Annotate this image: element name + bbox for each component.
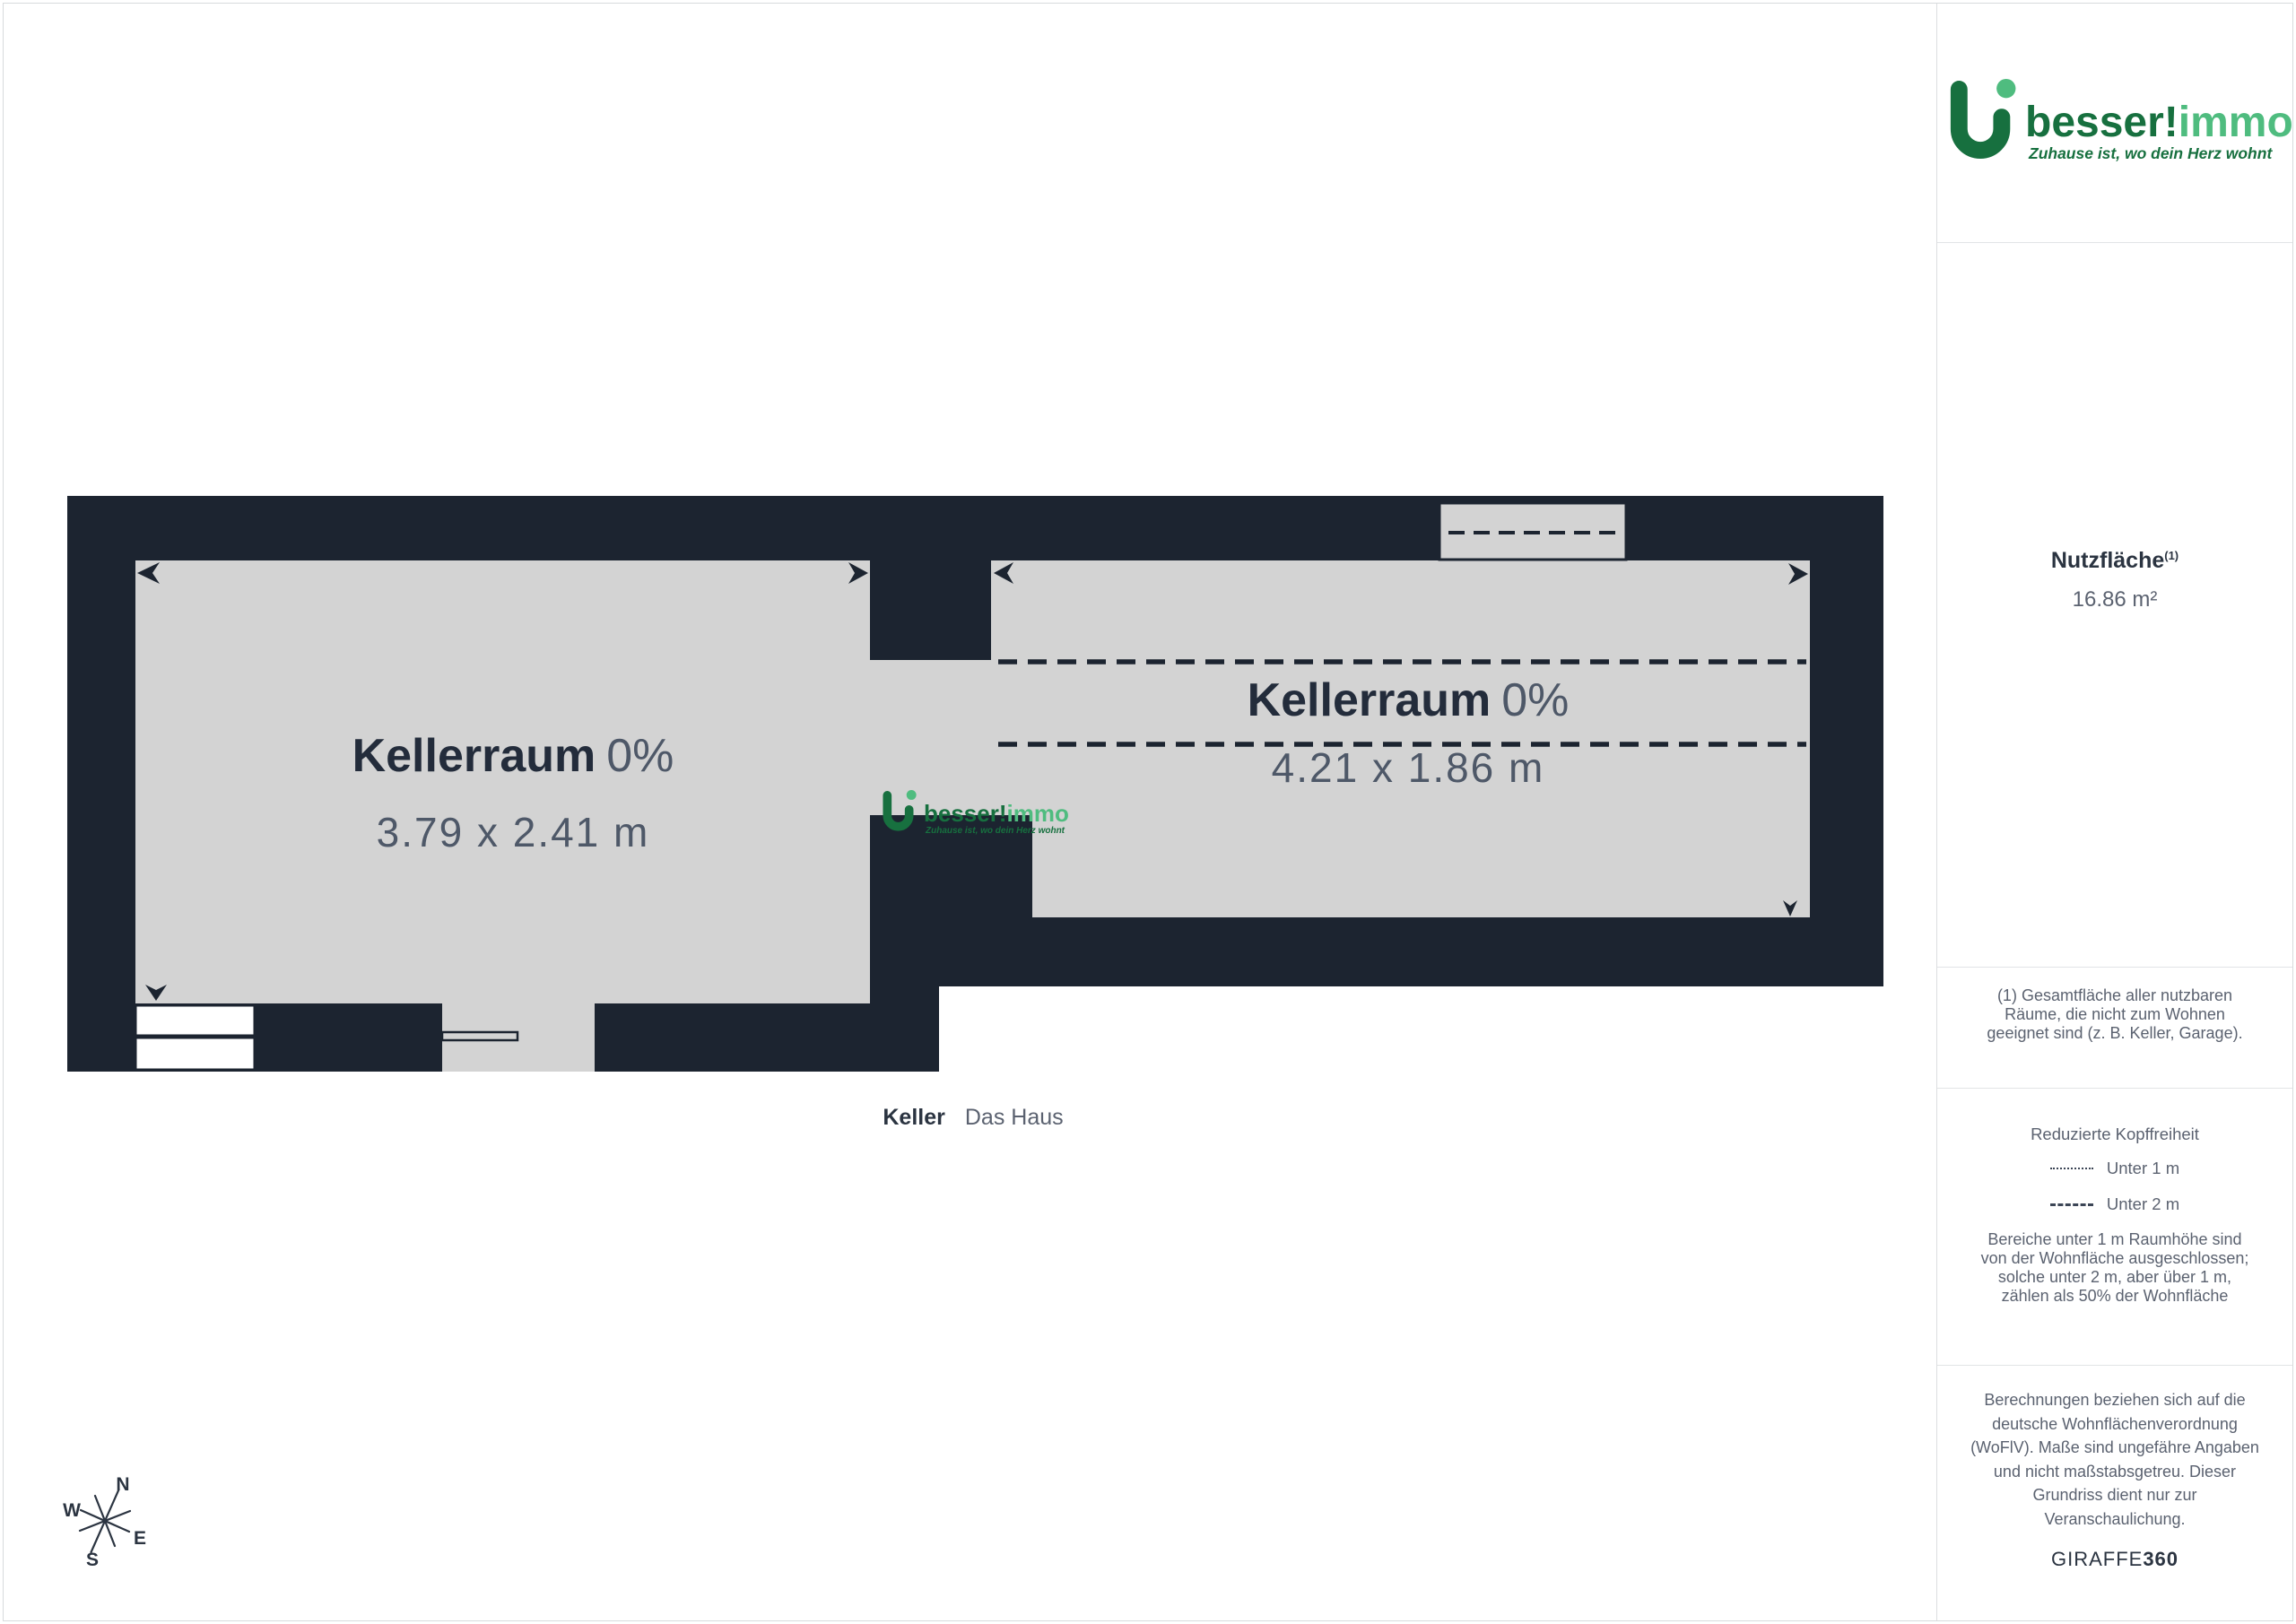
area-footnote-ref: (1): [2164, 549, 2179, 562]
compass-s: S: [86, 1550, 99, 1570]
giraffe360-brand: GIRAFFE360: [1937, 1548, 2292, 1571]
compass-n: N: [116, 1474, 129, 1495]
svg-text:besser!immo: besser!immo: [924, 800, 1069, 827]
room-left-label: Kellerraum0%: [352, 730, 674, 782]
area-value: 16.86 m²: [1937, 588, 2292, 612]
caption-level: Keller: [883, 1105, 944, 1130]
legend-under-1m-label: Unter 1 m: [2107, 1159, 2179, 1178]
compass-w: W: [63, 1500, 81, 1521]
sidebar-left-border: [1936, 4, 1937, 1620]
disclaimer: Berechnungen beziehen sich auf die deuts…: [1937, 1388, 2292, 1531]
area-title: Nutzfläche(1): [1937, 549, 2292, 576]
sidebar-divider-3: [1937, 1088, 2292, 1089]
svg-text:Zuhause ist, wo dein Herz wohn: Zuhause ist, wo dein Herz wohnt: [925, 826, 1065, 836]
giraffe360-normal: GIRAFFE: [2051, 1548, 2143, 1570]
dotted-line-sample: [2050, 1168, 2093, 1169]
stairs: [135, 1005, 255, 1070]
compass-e: E: [134, 1528, 146, 1549]
room-left-floor: [135, 560, 870, 1003]
room-right-dims: 4.21 x 1.86 m: [1272, 744, 1545, 791]
giraffe360-bold: 360: [2143, 1548, 2179, 1570]
svg-text:Zuhause ist, wo dein Herz wohn: Zuhause ist, wo dein Herz wohnt: [2028, 144, 2273, 162]
floorplan-page: Kellerraum0% 3.79 x 2.41 m Kellerraum0% …: [0, 0, 2296, 1624]
headroom-legend-title: Reduzierte Kopffreiheit: [1937, 1125, 2292, 1143]
window-opening: [1439, 503, 1626, 560]
legend-under-2m: Unter 2 m: [1937, 1194, 2292, 1214]
sidebar-divider-4: [1937, 1365, 2292, 1366]
headroom-note: Bereiche unter 1 m Raumhöhe sind von der…: [1937, 1230, 2292, 1306]
dashed-line-sample: [2050, 1203, 2093, 1206]
door-leaf: [442, 1032, 517, 1040]
compass: N W E S: [63, 1474, 146, 1570]
floorplan-drawing: Kellerraum0% 3.79 x 2.41 m Kellerraum0% …: [0, 0, 2296, 1624]
room-left-dims: 3.79 x 2.41 m: [377, 809, 650, 855]
area-footnote: (1) Gesamtfläche aller nutzbaren Räume, …: [1937, 986, 2292, 1043]
area-title-text: Nutzfläche: [2051, 548, 2164, 573]
legend-under-1m: Unter 1 m: [1937, 1159, 2292, 1178]
plan-caption: KellerDas Haus: [794, 1105, 1152, 1131]
sidebar-divider-2: [1937, 967, 2292, 968]
caption-project: Das Haus: [965, 1105, 1064, 1130]
room-right-floor: [991, 560, 1810, 917]
svg-text:besser!immo: besser!immo: [2025, 99, 2293, 146]
room-right-label: Kellerraum0%: [1248, 674, 1570, 726]
sidebar-divider-1: [1937, 242, 2292, 243]
brand-logo: besser!immo Zuhause ist, wo dein Herz wo…: [1959, 79, 2292, 162]
legend-under-2m-label: Unter 2 m: [2107, 1194, 2179, 1214]
mid-wall-block: [870, 815, 1032, 986]
